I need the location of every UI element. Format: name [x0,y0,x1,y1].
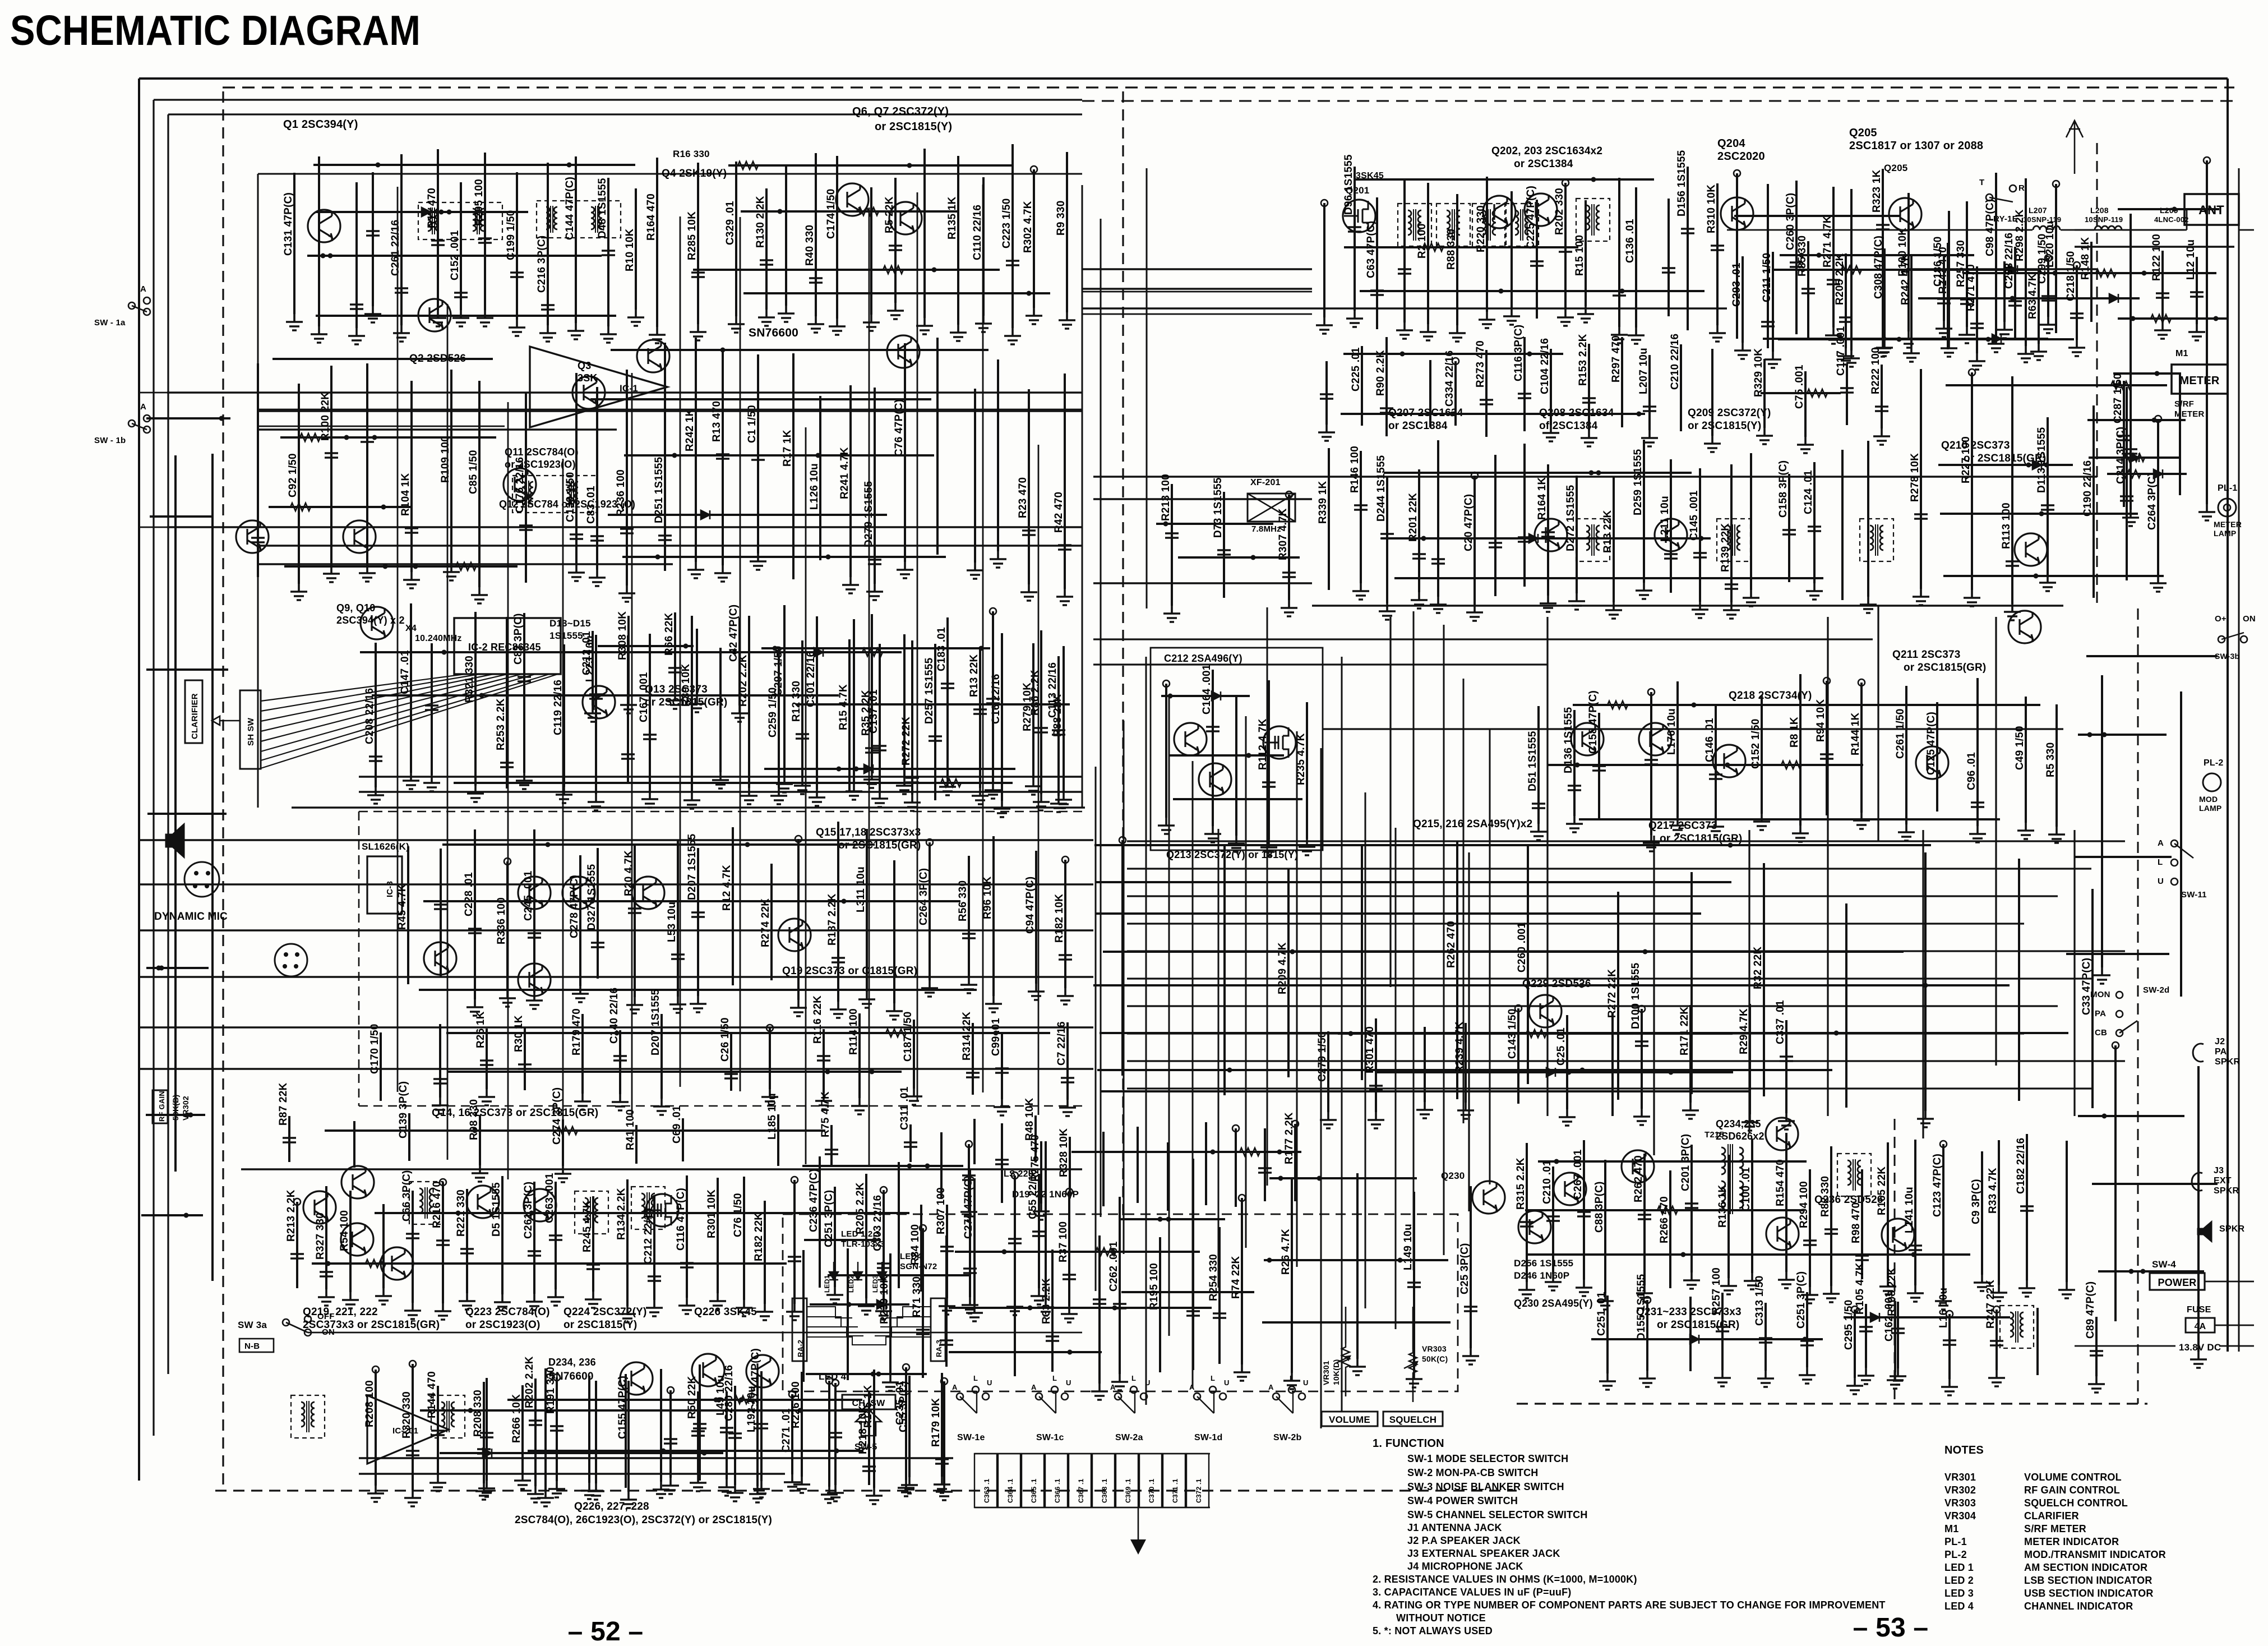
svg-text:C293 .01: C293 .01 [1731,262,1743,307]
svg-text:METER: METER [2180,375,2220,387]
svg-text:R109 100: R109 100 [440,436,451,483]
svg-text:C267 .001: C267 .001 [1572,1149,1584,1200]
svg-text:C82 3P(C): C82 3P(C) [512,613,524,665]
svg-text:2. RESISTANCE VALUES IN OHMS (: 2. RESISTANCE VALUES IN OHMS (K=1000, M=… [1373,1574,1637,1585]
svg-text:D256 1S1555: D256 1S1555 [1514,1258,1573,1269]
svg-text:C96 .01: C96 .01 [1966,752,1978,790]
svg-text:R236 100: R236 100 [615,469,627,517]
svg-text:5. *: NOT ALWAYS USED: 5. *: NOT ALWAYS USED [1373,1625,1493,1636]
svg-text:R336 100: R336 100 [496,897,507,944]
svg-text:PL-1: PL-1 [1944,1536,1967,1547]
svg-text:C174 1/50: C174 1/50 [825,189,837,239]
svg-text:MOD: MOD [2199,795,2218,804]
svg-text:R272 22K: R272 22K [900,717,912,766]
svg-text:RF GAIN CONTROL: RF GAIN CONTROL [2024,1484,2120,1496]
svg-text:SCHEMATIC DIAGRAM: SCHEMATIC DIAGRAM [10,7,421,54]
svg-text:SW-1d: SW-1d [1194,1433,1222,1442]
svg-text:or 2SC1384: or 2SC1384 [1514,158,1573,170]
svg-text:C186 1/50: C186 1/50 [1932,237,1944,287]
svg-text:R213 100: R213 100 [1160,474,1172,521]
svg-text:SW-5 CHANNEL SELECTOR SWITCH: SW-5 CHANNEL SELECTOR SWITCH [1407,1509,1588,1520]
svg-text:1. FUNCTION: 1. FUNCTION [1373,1437,1444,1450]
svg-text:J3: J3 [2214,1166,2224,1175]
svg-text:LED 1: LED 1 [1944,1562,1974,1573]
svg-text:L141 10u: L141 10u [1904,1187,1915,1233]
svg-text:SL1626(K): SL1626(K) [362,841,409,852]
svg-text:LAMP: LAMP [2199,804,2221,813]
svg-text:R54 100: R54 100 [339,1210,350,1251]
svg-text:C20 47P(C): C20 47P(C) [1463,494,1475,551]
svg-text:A: A [1268,1383,1274,1391]
svg-text:7.8MHz: 7.8MHz [1251,524,1281,534]
svg-text:CB: CB [2095,1028,2107,1038]
svg-text:R13 470: R13 470 [711,401,723,442]
svg-text:METER: METER [2214,520,2242,529]
svg-text:R285 10K: R285 10K [686,211,698,260]
svg-text:Q234,235: Q234,235 [1716,1118,1761,1129]
svg-text:R177 2.2K: R177 2.2K [1283,1112,1295,1164]
svg-text:D5 1S1555: D5 1S1555 [491,1182,502,1237]
svg-text:Q224 2SC372(Y): Q224 2SC372(Y) [563,1306,647,1318]
svg-text:C367 .1: C367 .1 [1077,1478,1085,1503]
svg-text:C147 .01: C147 .01 [399,650,411,694]
svg-text:U: U [987,1378,992,1387]
svg-text:SPKR: SPKR [2215,1057,2240,1067]
svg-text:R302 4.7K: R302 4.7K [1022,201,1034,253]
svg-text:A: A [140,402,146,412]
svg-text:R50 22K: R50 22K [686,1376,698,1419]
svg-text:Q223 2SC784(O): Q223 2SC784(O) [465,1306,550,1318]
svg-text:Q226, 227, 228: Q226, 227, 228 [574,1501,649,1513]
svg-text:R273 470: R273 470 [1475,340,1486,388]
svg-text:C55 3P(C): C55 3P(C) [898,1381,909,1432]
svg-text:R218 10K: R218 10K [857,1405,869,1454]
svg-text:SW-1 MODE SELECTOR SWITCH: SW-1 MODE SELECTOR SWITCH [1407,1453,1568,1464]
svg-text:R87 22K: R87 22K [278,1083,289,1126]
svg-text:R310 10K: R310 10K [1706,185,1717,233]
svg-text:C33 47P(C): C33 47P(C) [2081,958,2093,1015]
svg-text:A: A [2158,838,2164,848]
svg-text:C274 3P(C): C274 3P(C) [551,1087,563,1145]
svg-text:J2 P.A SPEAKER JACK: J2 P.A SPEAKER JACK [1407,1535,1521,1546]
svg-text:LED 4: LED 4 [1944,1601,1974,1612]
svg-text:R20 4.7K: R20 4.7K [623,850,635,896]
svg-text:4. RATING OR TYPE NUMBER OF CO: 4. RATING OR TYPE NUMBER OF COMPONENT PA… [1373,1599,1886,1611]
svg-text:2SC373x3 or 2SC1815(GR): 2SC373x3 or 2SC1815(GR) [303,1319,440,1331]
svg-text:R146 100: R146 100 [1349,446,1361,493]
svg-text:R26 4.7K: R26 4.7K [1280,1229,1292,1275]
svg-text:C113 22/16: C113 22/16 [1047,662,1059,718]
svg-text:VR302: VR302 [1944,1484,1976,1496]
svg-text:10K(D): 10K(D) [1332,1359,1341,1385]
svg-text:A: A [952,1383,958,1391]
svg-text:C298 22/16: C298 22/16 [2003,233,2015,289]
svg-text:LSB SECTION INDICATOR: LSB SECTION INDICATOR [2024,1575,2152,1586]
svg-text:R88 330: R88 330 [1445,229,1457,270]
svg-text:1S1555: 1S1555 [549,630,583,641]
svg-text:VR303: VR303 [1944,1497,1976,1509]
svg-text:C190 22/16: C190 22/16 [2082,460,2094,517]
svg-text:D96 1S1555: D96 1S1555 [1343,154,1355,215]
svg-text:R274 22K: R274 22K [760,898,772,947]
svg-text:RA-3: RA-3 [935,1340,943,1357]
svg-text:R208 100: R208 100 [364,1380,376,1427]
svg-text:L: L [2158,857,2163,867]
svg-text:R33 4.7K: R33 4.7K [1987,1168,1999,1214]
svg-text:C259 1/50: C259 1/50 [767,688,779,737]
svg-text:O+: O+ [2215,614,2227,624]
svg-text:R98 330: R98 330 [468,1099,480,1140]
svg-text:R: R [2018,183,2025,193]
svg-text:Q215, 216 2SA495(Y)x2: Q215, 216 2SA495(Y)x2 [1413,818,1532,830]
svg-text:Q209 2SC372(Y): Q209 2SC372(Y) [1688,407,1771,419]
svg-text:SN76600: SN76600 [749,326,798,339]
svg-text:SW 3a: SW 3a [238,1320,267,1330]
svg-text:L: L [1131,1374,1136,1382]
svg-text:USB SECTION INDICATOR: USB SECTION INDICATOR [2024,1588,2154,1599]
svg-text:SW-1c: SW-1c [1036,1433,1064,1442]
svg-text:D259 1S1555: D259 1S1555 [1632,449,1644,515]
svg-text:R164 470: R164 470 [645,193,657,241]
svg-text:C110 22/16: C110 22/16 [972,205,983,260]
svg-text:R12 330: R12 330 [791,681,802,722]
svg-text:C167 .001: C167 .001 [638,672,650,722]
svg-text:M1: M1 [2175,349,2188,358]
svg-text:PL-2: PL-2 [1944,1549,1967,1560]
svg-text:S/RF: S/RF [2174,399,2194,409]
svg-text:SQUELCH CONTROL: SQUELCH CONTROL [2024,1497,2128,1509]
svg-text:T: T [1979,178,1984,187]
svg-text:Q19 2SC373 or C1815(GR): Q19 2SC373 or C1815(GR) [782,965,917,977]
svg-text:SW-2 MON-PA-CB SWITCH: SW-2 MON-PA-CB SWITCH [1407,1467,1538,1478]
svg-text:C251 3P(C): C251 3P(C) [823,1190,835,1247]
svg-text:L185 10u: L185 10u [766,1093,778,1140]
svg-text:R272 22K: R272 22K [1606,969,1618,1018]
svg-text:C369 .1: C369 .1 [1124,1478,1132,1503]
svg-text:SH SW: SH SW [246,717,256,746]
svg-text:L311 10u: L311 10u [855,866,867,912]
svg-text:C263 .001: C263 .001 [544,1173,556,1223]
svg-text:R307 4.7K: R307 4.7K [1277,508,1289,560]
svg-text:50K(C): 50K(C) [1422,1354,1448,1363]
svg-text:METER INDICATOR: METER INDICATOR [2024,1536,2119,1547]
svg-text:R323 1K: R323 1K [1871,170,1883,213]
svg-text:VR304: VR304 [1944,1510,1976,1521]
svg-text:C125 47P(C): C125 47P(C) [1925,712,1937,775]
svg-text:AM SECTION INDICATOR: AM SECTION INDICATOR [2024,1562,2147,1573]
svg-text:C164 .001: C164 .001 [1201,664,1213,714]
svg-text:R116 22K: R116 22K [812,995,824,1044]
svg-text:A: A [1031,1383,1037,1391]
svg-text:D100 1S1555: D100 1S1555 [1630,962,1642,1029]
svg-text:R182 10K: R182 10K [1054,894,1065,943]
svg-text:SPKR: SPKR [2214,1186,2239,1196]
svg-text:C225 47P(C): C225 47P(C) [1525,186,1537,249]
svg-text:Q210 2SC373: Q210 2SC373 [1941,440,2010,451]
svg-text:– 52 –: – 52 – [568,1617,644,1646]
svg-text:U: U [1224,1378,1230,1387]
svg-text:R171 22K: R171 22K [1679,1007,1690,1055]
svg-text:C364 .1: C364 .1 [1006,1478,1014,1503]
svg-text:R135 1K: R135 1K [946,197,958,239]
svg-text:J2: J2 [2215,1037,2225,1046]
svg-text:R271 4.7K: R271 4.7K [1822,215,1833,268]
svg-text:C182 22/16: C182 22/16 [2015,1138,2027,1194]
svg-text:L: L [1052,1374,1057,1382]
svg-text:VOLUME: VOLUME [1329,1414,1370,1425]
svg-text:C162 .001: C162 .001 [1883,1291,1895,1341]
svg-text:C216 3P(C): C216 3P(C) [536,236,548,293]
svg-text:C261 22/16: C261 22/16 [390,220,401,276]
svg-text:C99 .01: C99 .01 [990,1018,1002,1056]
svg-text:C144 47P(C): C144 47P(C) [564,177,576,240]
svg-text:R247 22K: R247 22K [1985,1280,1997,1329]
svg-text:CLARIFIER: CLARIFIER [2024,1510,2079,1521]
svg-text:10SNP-119: 10SNP-119 [2085,215,2123,224]
svg-text:SW-4 POWER SWITCH: SW-4 POWER SWITCH [1407,1495,1518,1506]
svg-text:R63 4.7K: R63 4.7K [2027,273,2039,319]
svg-text:L211 10u: L211 10u [1659,496,1671,542]
svg-text:MOD./TRANSMIT INDICATOR: MOD./TRANSMIT INDICATOR [2024,1549,2166,1560]
svg-text:R26 1K: R26 1K [475,1011,487,1048]
svg-text:R11 470: R11 470 [426,188,438,228]
svg-text:L126 10u: L126 10u [809,463,820,510]
svg-text:C280 22/16: C280 22/16 [723,1365,735,1421]
svg-text:3. CAPACITANCE VALUES IN uF (P: 3. CAPACITANCE VALUES IN uF (P=uuF) [1373,1587,1572,1598]
svg-text:C100 .01: C100 .01 [1740,1167,1752,1211]
svg-text:C264 3P(C): C264 3P(C) [2146,473,2158,530]
svg-text:R271 470: R271 470 [1965,264,1977,311]
svg-text:R339 1K: R339 1K [1317,481,1329,524]
svg-text:D155 1S1555: D155 1S1555 [1636,1274,1647,1340]
svg-text:C136 .01: C136 .01 [1624,219,1636,263]
svg-text:R209 4.7K: R209 4.7K [1277,942,1288,994]
svg-text:C187 1/50: C187 1/50 [902,1012,914,1062]
svg-text:L176 10u: L176 10u [1666,708,1678,755]
svg-text:C212 22/16: C212 22/16 [643,1208,654,1264]
svg-text:Q230 2SA495(Y): Q230 2SA495(Y) [1514,1298,1593,1309]
svg-text:L16 10u: L16 10u [1938,1288,1950,1328]
svg-text:D327 1S1555: D327 1S1555 [586,864,598,930]
svg-text:PA: PA [2095,1009,2106,1018]
svg-text:C372 .1: C372 .1 [1195,1478,1203,1503]
svg-text:PA: PA [2215,1047,2227,1057]
svg-text:R9 330: R9 330 [1055,201,1067,236]
svg-text:R266 10K: R266 10K [511,1394,523,1443]
svg-text:C311 .01: C311 .01 [899,1086,911,1130]
svg-text:C363 .1: C363 .1 [983,1478,991,1503]
svg-text:R308 10K: R308 10K [617,611,629,660]
svg-text:R245 4.7K: R245 4.7K [581,1200,593,1252]
svg-text:SW-11: SW-11 [2181,890,2207,900]
svg-text:R262 470: R262 470 [1445,921,1457,968]
svg-text:VOLUME CONTROL: VOLUME CONTROL [2024,1472,2122,1483]
svg-text:R205 2.2K: R205 2.2K [854,1182,866,1234]
svg-text:R216 470: R216 470 [431,1181,443,1228]
svg-text:M1: M1 [1944,1523,1958,1534]
svg-text:WITHOUT NOTICE: WITHOUT NOTICE [1396,1612,1486,1624]
svg-text:R154 470: R154 470 [1775,1159,1786,1206]
svg-text:C218 1/50: C218 1/50 [2065,251,2077,301]
svg-text:LED 3: LED 3 [1944,1588,1974,1599]
svg-text:C75 .001: C75 .001 [1794,365,1805,409]
svg-text:CLARIFIER: CLARIFIER [190,693,200,739]
svg-text:R32 22K: R32 22K [1752,947,1764,989]
svg-text:D251 1S1555: D251 1S1555 [653,457,665,523]
svg-text:C76 47P(C): C76 47P(C) [893,399,905,457]
svg-text:C49 1/50: C49 1/50 [2014,726,2026,770]
svg-text:or 2SC1815(GR): or 2SC1815(GR) [1904,662,1986,674]
svg-text:R179 10K: R179 10K [930,1398,942,1447]
svg-text:Q204: Q204 [1717,137,1745,150]
svg-text:C25 3P(C): C25 3P(C) [1459,1243,1471,1294]
svg-text:C76 1/50: C76 1/50 [732,1193,744,1237]
svg-text:C366 .1: C366 .1 [1054,1478,1061,1503]
svg-text:R164 1K: R164 1K [1536,477,1548,520]
svg-text:SW-2a: SW-2a [1115,1433,1143,1442]
svg-text:VR303: VR303 [1422,1344,1447,1353]
svg-text:SW - 1b: SW - 1b [94,436,126,445]
svg-text:L53 10u: L53 10u [666,902,678,942]
svg-text:C98 47P(C): C98 47P(C) [1984,199,1996,256]
svg-text:S/RF METER: S/RF METER [2024,1523,2086,1534]
svg-text:R195 100: R195 100 [1148,1263,1160,1310]
svg-text:R100 22K: R100 22K [320,392,331,441]
svg-text:or 2SC1815(GR): or 2SC1815(GR) [1657,1319,1739,1331]
svg-text:D234, 236: D234, 236 [548,1357,596,1368]
svg-text:Q11 2SC784(O): Q11 2SC784(O) [505,446,579,458]
svg-text:R16 330: R16 330 [673,149,710,159]
svg-text:C251 .01: C251 .01 [1596,1292,1608,1336]
svg-text:C69 .01: C69 .01 [671,1105,683,1144]
svg-text:C88 3P(C): C88 3P(C) [1593,1181,1605,1233]
svg-text:NOTES: NOTES [1944,1444,1984,1456]
svg-text:J1 ANTENNA JACK: J1 ANTENNA JACK [1407,1522,1502,1533]
svg-text:4A: 4A [2195,1322,2206,1331]
svg-text:J4 MICROPHONE JACK: J4 MICROPHONE JACK [1407,1561,1523,1572]
svg-text:C170 1/50: C170 1/50 [369,1024,381,1074]
svg-text:DYNAMIC MIC: DYNAMIC MIC [154,911,228,923]
svg-text:SQUELCH: SQUELCH [1389,1414,1437,1425]
svg-text:R279 10K: R279 10K [1022,683,1033,731]
svg-text:Q1 2SC394(Y): Q1 2SC394(Y) [283,118,358,131]
svg-text:R201 22K: R201 22K [1407,493,1419,542]
svg-text:L207: L207 [2029,206,2047,215]
svg-text:R320 330: R320 330 [401,1391,413,1438]
svg-text:SW-2d: SW-2d [2143,985,2169,995]
svg-text:R82 330: R82 330 [1819,1176,1831,1217]
svg-text:R71 330: R71 330 [911,1276,923,1317]
svg-text:R15 100: R15 100 [1574,235,1586,276]
svg-text:Q219, 221, 222: Q219, 221, 222 [303,1306,378,1318]
svg-text:R294 100: R294 100 [1798,1181,1810,1228]
svg-text:R242 1K: R242 1K [684,409,696,451]
svg-text:ON: ON [2243,614,2256,624]
svg-text:C176 22/16: C176 22/16 [514,457,526,513]
svg-text:C9 3P(C): C9 3P(C) [1970,1179,1982,1224]
svg-text:2SC2020: 2SC2020 [1717,150,1765,163]
svg-text:C26 1/50: C26 1/50 [719,1017,731,1062]
svg-text:SW - 1a: SW - 1a [94,318,126,328]
svg-text:D257 1S1555: D257 1S1555 [923,657,935,724]
svg-text:C279 1/50: C279 1/50 [1317,1032,1328,1082]
svg-text:L: L [973,1374,978,1382]
svg-text:C139 1/50: C139 1/50 [565,472,576,522]
svg-text:CHANNEL INDICATOR: CHANNEL INDICATOR [2024,1601,2133,1612]
svg-text:D156 1S1555: D156 1S1555 [1676,150,1688,216]
svg-text:R222 100: R222 100 [1870,347,1882,394]
svg-text:R113 100: R113 100 [2001,502,2012,549]
svg-text:C260 .001: C260 .001 [1516,922,1528,972]
svg-text:R17 1K: R17 1K [782,430,793,467]
svg-text:C104 22/16: C104 22/16 [1539,338,1551,394]
svg-text:Q6, Q7 2SC372(Y): Q6, Q7 2SC372(Y) [852,105,949,118]
svg-text:C140 22/16: C140 22/16 [608,988,620,1044]
svg-text:C275 47P(C): C275 47P(C) [750,1348,761,1412]
svg-text:Q231~233 2SC373x3: Q231~233 2SC373x3 [1636,1306,1742,1318]
svg-text:C261 3P(C): C261 3P(C) [523,1182,534,1239]
svg-text:D51 1S1555: D51 1S1555 [1527,731,1539,791]
svg-text:4LNC-002: 4LNC-002 [2154,215,2189,224]
svg-text:L208: L208 [2090,206,2109,215]
svg-text:R266 470: R266 470 [1659,1196,1670,1243]
svg-text:R5 22K: R5 22K [884,196,895,233]
svg-text:R327 330: R327 330 [315,1212,326,1260]
svg-text:2SC784(O), 26C1923(O), 2SC372(: 2SC784(O), 26C1923(O), 2SC372(Y) or 2SC1… [515,1514,772,1526]
svg-text:C199 1/50: C199 1/50 [505,210,517,260]
svg-text:C42 47P(C): C42 47P(C) [728,605,740,662]
svg-text:C301 22/16: C301 22/16 [805,651,817,707]
svg-text:R275 470: R275 470 [1029,1135,1041,1182]
svg-text:2SC394(Y) x 2: 2SC394(Y) x 2 [336,615,405,626]
svg-text:R242 4.7K: R242 4.7K [1900,253,1911,305]
svg-text:C212 .01: C212 .01 [581,631,593,675]
svg-text:R220 330: R220 330 [1475,205,1487,252]
svg-text:– 53 –: – 53 – [1853,1613,1929,1643]
svg-text:R104 1K: R104 1K [400,473,412,516]
svg-text:L149 10u: L149 10u [1402,1224,1414,1270]
svg-text:R179 470: R179 470 [571,1008,583,1055]
svg-text:LAMP: LAMP [2214,529,2236,538]
svg-text:C85 1/50: C85 1/50 [468,450,479,494]
svg-text:SW-3b: SW-3b [2215,652,2239,661]
svg-text:U: U [1066,1378,1071,1387]
svg-text:Q211 2SC373: Q211 2SC373 [1892,649,1961,661]
svg-text:13.8V DC: 13.8V DC [2179,1342,2221,1353]
svg-text:A: A [140,284,146,294]
svg-text:R314 22K: R314 22K [961,1012,973,1061]
svg-text:R13 22K: R13 22K [968,654,980,697]
svg-text:D136 1S1555: D136 1S1555 [1563,707,1574,773]
svg-text:C152 1/50: C152 1/50 [1750,719,1762,769]
svg-text:D73 1S1555: D73 1S1555 [1212,477,1224,538]
svg-text:C211 1/50: C211 1/50 [1761,253,1773,302]
svg-text:2SC1817 or 1307 or 2088: 2SC1817 or 1307 or 2088 [1849,140,1983,152]
svg-text:R136 1K: R136 1K [1717,1185,1729,1228]
svg-text:C210 22/16: C210 22/16 [1669,334,1681,390]
svg-text:LED1: LED1 [823,1275,831,1293]
svg-text:R2 100: R2 100 [1416,224,1428,259]
svg-text:Q205: Q205 [1884,163,1907,173]
svg-text:C223 1/50: C223 1/50 [1001,199,1013,248]
svg-text:C146 .01: C146 .01 [1704,718,1716,762]
svg-text:Q9, Q10: Q9, Q10 [336,602,375,614]
svg-text:C210 .01: C210 .01 [1541,1160,1553,1204]
svg-text:or 2SC1815(Y): or 2SC1815(Y) [875,121,952,133]
svg-text:C245 .001: C245 .001 [523,870,534,921]
svg-text:R114 100: R114 100 [848,1008,860,1055]
svg-text:L: L [1211,1374,1215,1382]
